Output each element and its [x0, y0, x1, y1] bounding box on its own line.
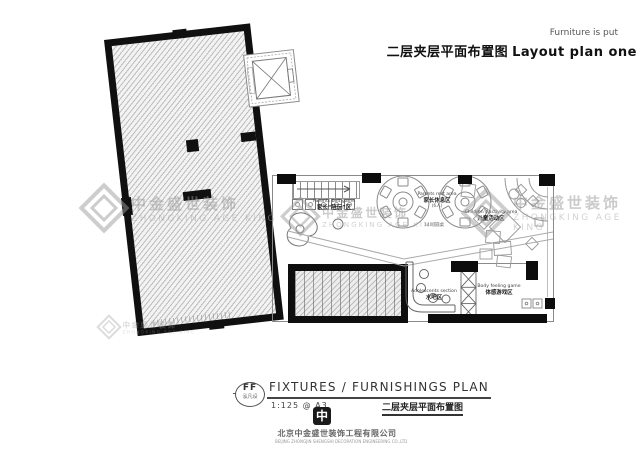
label-body-game-area: Body feeling game 体感游戏区	[468, 284, 530, 296]
hatched-hall	[104, 23, 284, 336]
sheet-title-en: Layout plan one	[512, 45, 637, 60]
wall-segment	[545, 298, 555, 309]
wall-segment	[277, 174, 296, 184]
partition-line	[478, 263, 527, 264]
elevator-shaft	[243, 49, 301, 109]
company-name-en: BEIJING ZHONGJIN SHENGSHI DECORATION ENG…	[275, 439, 399, 444]
sheet-title-zh: 二层夹层平面布置图	[387, 45, 509, 60]
stool	[292, 199, 303, 210]
wall-segment	[458, 175, 472, 184]
stair-void-block	[288, 264, 408, 323]
label-children-activity-area: Children's activity area 儿童活动区	[452, 210, 530, 222]
wall-inner-line	[547, 187, 548, 297]
column	[186, 139, 199, 152]
company-logo-icon: 中	[313, 407, 331, 425]
wall-stub	[172, 29, 187, 40]
label-parents-rest-area: Parents rest area 家长休息区 (6人)	[411, 192, 463, 210]
wall-stub	[208, 319, 224, 330]
brand-diamond-icon	[96, 314, 121, 339]
staircase	[292, 181, 360, 199]
drawing-title-en: FIXTURES / FURNISHINGS PLAN	[269, 380, 493, 394]
title-underline	[267, 397, 491, 399]
label-bar-area: Adolescents section 水吧区	[407, 289, 461, 301]
label-table-size: 1400圆桌	[424, 222, 444, 228]
sheet-note: Furniture is put	[550, 28, 618, 38]
drawing-code-bubble: FF 泓凡设	[235, 382, 265, 407]
drawing-title-zh: 二层夹层平面布置图	[382, 400, 463, 416]
wall-segment	[451, 261, 478, 272]
wall-segment	[539, 174, 555, 186]
floor-plan-sheet: Furniture is put 二层夹层平面布置图Layout plan on…	[0, 0, 640, 452]
title-block: FF 泓凡设 FIXTURES / FURNISHINGS PLAN 1:125…	[233, 378, 495, 450]
column	[240, 131, 256, 142]
wall-stub	[183, 189, 212, 201]
column	[526, 261, 538, 280]
company-name-zh: 北京中金盛世装饰工程有限公司	[275, 428, 399, 439]
wall-segment	[428, 314, 547, 323]
wall-stub	[121, 197, 133, 216]
sheet-title: 二层夹层平面布置图Layout plan one	[387, 41, 637, 60]
wall-segment	[362, 173, 381, 183]
label-parents-play-area: Parents belt game 家长“陪玩”区	[303, 199, 365, 211]
